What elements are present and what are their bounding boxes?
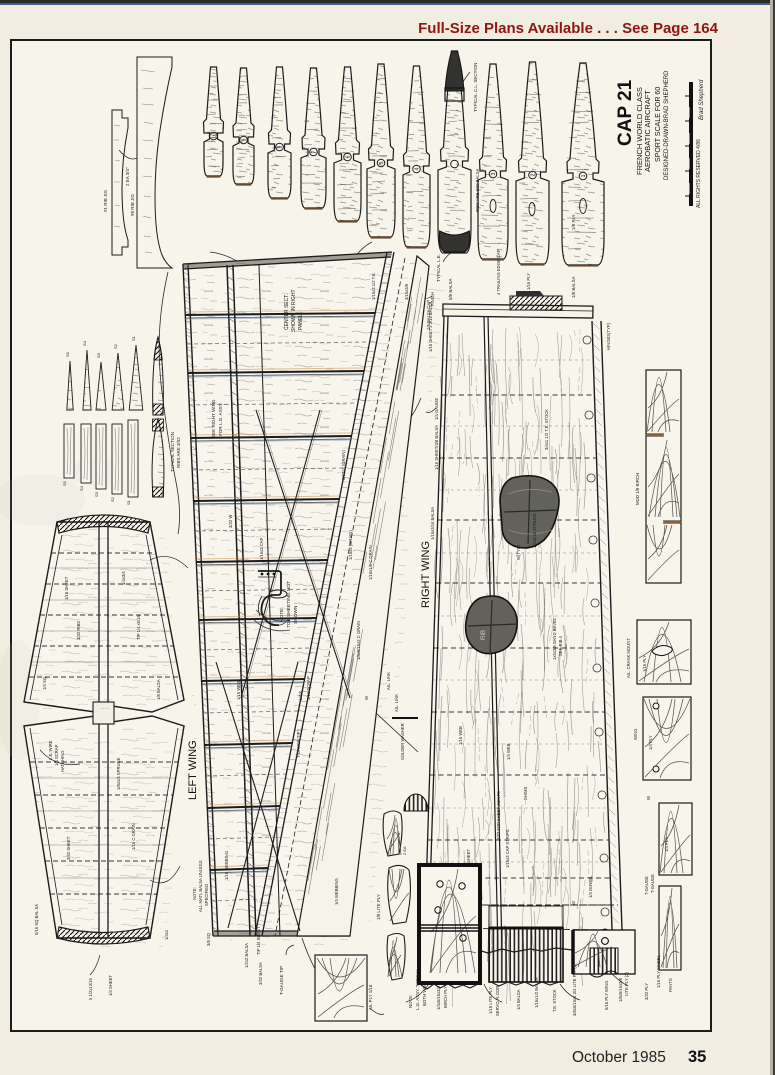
svg-text:7: 7 (312, 150, 318, 153)
svg-text:3/32 SHEET: 3/32 SHEET (66, 836, 71, 860)
svg-text:3/32 W: 3/32 W (228, 515, 233, 528)
svg-text:3/32 BALSA: 3/32 BALSA (258, 962, 263, 985)
svg-text:S4: S4 (82, 340, 87, 346)
svg-text:1/16 WEBBING: 1/16 WEBBING (224, 851, 229, 880)
svg-text:S2: S2 (113, 343, 118, 349)
svg-text:SPORT SCALE FOR 60: SPORT SCALE FOR 60 (655, 87, 662, 162)
svg-text:1/8 PLY: 1/8 PLY (571, 214, 576, 230)
svg-text:3/16 SCRAP: 3/16 SCRAP (306, 676, 311, 700)
svg-text:1: 1 (581, 174, 587, 177)
svg-text:#8 RIB JIG: #8 RIB JIG (130, 193, 135, 216)
svg-text:5/16 SQ BAL SA: 5/16 SQ BAL SA (34, 904, 39, 935)
svg-text:1/4x1: 1/4x1 (164, 929, 169, 940)
svg-text:1/4 PLY: 1/4 PLY (664, 837, 669, 852)
svg-text:S3: S3 (96, 352, 101, 358)
svg-text:SEE RIGHT WING: SEE RIGHT WING (211, 399, 216, 438)
svg-text:1/4 BALSA: 1/4 BALSA (516, 989, 521, 1010)
svg-text:1/8 LITE PLY: 1/8 LITE PLY (376, 894, 381, 920)
svg-text:3/16x3/8: 3/16x3/8 (404, 283, 409, 300)
svg-text:1/16x3 1/2 T.E.: 1/16x3 1/2 T.E. (371, 272, 376, 300)
svg-text:S5: S5 (65, 351, 70, 357)
svg-text:TIP 1/4 x5/16: TIP 1/4 x5/16 (136, 614, 141, 640)
svg-text:S2: S2 (110, 496, 115, 502)
svg-text:WING: WING (633, 729, 638, 740)
svg-text:1/8x5/16x2 C GRAIN: 1/8x5/16x2 C GRAIN (356, 621, 361, 660)
svg-text:SHIMS: SHIMS (523, 787, 528, 800)
svg-text:T-GAUGE TIP: T-GAUGE TIP (279, 966, 284, 995)
svg-text:1/8x1/4 SPRUCE: 1/8x1/4 SPRUCE (116, 757, 121, 790)
svg-text:3/32x3 (GRAIN): 3/32x3 (GRAIN) (341, 450, 346, 480)
svg-text:4: 4 (415, 167, 421, 170)
svg-text:AIL. LINK: AIL. LINK (394, 694, 399, 712)
svg-text:1/4 WEBBING: 1/4 WEBBING (334, 878, 339, 905)
svg-text:W: W (571, 901, 576, 905)
svg-text:Full-Size Plans Available . .: Full-Size Plans Available . . . See Page… (418, 20, 719, 37)
svg-text:1/16 WEB: 1/16 WEB (458, 726, 463, 745)
svg-text:8: 8 (278, 145, 284, 148)
svg-text:5 1/2x13/16: 5 1/2x13/16 (88, 977, 93, 1000)
svg-text:October 1985: October 1985 (572, 1049, 666, 1066)
svg-text:T-GAUGE: T-GAUGE (644, 876, 649, 895)
svg-text:1/16 PLY: 1/16 PLY (526, 273, 531, 290)
svg-text:TOP SHEETING NOT: TOP SHEETING NOT (286, 581, 292, 628)
svg-text:PANEL: PANEL (298, 314, 304, 330)
svg-text:1/16x1/2 C GRAIN: 1/16x1/2 C GRAIN (368, 545, 373, 580)
svg-text:RIGHT WING: RIGHT WING (420, 541, 432, 608)
svg-text:SHOWN: SHOWN (293, 605, 299, 624)
svg-text:1/16x1/2 BALSA: 1/16x1/2 BALSA (534, 977, 539, 1008)
svg-text:MDD 1/8 BIRCH: MDD 1/8 BIRCH (635, 473, 640, 505)
svg-text:PANTS: PANTS (668, 978, 673, 992)
svg-text:2 EA 3/4": 2 EA 3/4" (125, 167, 130, 186)
svg-text:1/4 WEB: 1/4 WEB (506, 743, 511, 760)
svg-text:RIBS ARE 3/32: RIBS ARE 3/32 (176, 437, 181, 468)
svg-text:W: W (646, 796, 651, 800)
svg-text:9: 9 (242, 138, 248, 141)
svg-text:35: 35 (688, 1048, 706, 1066)
svg-text:AIL. LINK: AIL. LINK (386, 672, 391, 690)
svg-text:3/8x5/16x4 3/4 LITE PLY (2): 3/8x5/16x4 3/4 LITE PLY (2) (572, 963, 577, 1016)
svg-text:SOLDER WASHER: SOLDER WASHER (400, 723, 405, 760)
svg-text:S1: S1 (131, 335, 136, 341)
svg-text:RIB: RIB (481, 630, 487, 640)
svg-text:1/16x3 (GRAIN): 1/16x3 (GRAIN) (348, 530, 353, 560)
svg-text:AIL PLY 1/16: AIL PLY 1/16 (368, 984, 373, 1010)
svg-text:5/16 PLY WING: 5/16 PLY WING (604, 981, 609, 1010)
svg-text:1/4 DOWEL: 1/4 DOWEL (588, 875, 593, 898)
svg-text:2 EA: 2 EA (402, 846, 407, 855)
svg-text:BIRCH PLY: BIRCH PLY (443, 986, 448, 1008)
svg-text:5: 5 (379, 161, 385, 164)
svg-text:1/4 PLY: 1/4 PLY (648, 735, 653, 750)
svg-text:5/8 BALSA: 5/8 BALSA (448, 278, 453, 300)
svg-text:1/4 SHEET: 1/4 SHEET (108, 975, 113, 996)
svg-text:1/16x3 CAP: 1/16x3 CAP (259, 537, 264, 560)
svg-text:AEROBATIC AIRCRAFT: AEROBATIC AIRCRAFT (643, 90, 652, 172)
svg-text:1/16 PLY WHEEL: 1/16 PLY WHEEL (656, 954, 661, 988)
svg-text:W: W (364, 696, 369, 700)
svg-text:1/16x3 CAP STRIPS: 1/16x3 CAP STRIPS (505, 829, 510, 868)
svg-text:CENTER SECT.: CENTER SECT. (284, 294, 290, 330)
svg-text:4 TRAILING EDGE CAP: 4 TRAILING EDGE CAP (496, 249, 501, 295)
svg-text:1/4x5/16x3/4: 1/4x5/16x3/4 (436, 985, 441, 1010)
svg-text:ALL RIGHTS RESERVED 4/86: ALL RIGHTS RESERVED 4/86 (696, 139, 702, 208)
svg-text:#1 RIB JIG: #1 RIB JIG (103, 189, 108, 212)
svg-text:1/16 WEB: 1/16 WEB (236, 681, 241, 700)
svg-text:FOR L.G. ASSY.: FOR L.G. ASSY. (218, 402, 223, 436)
svg-text:W(TYP): W(TYP) (516, 545, 521, 560)
svg-text:1/8 BALSA: 1/8 BALSA (156, 679, 161, 700)
svg-text:3/8 SQ: 3/8 SQ (206, 932, 211, 946)
svg-text:1x4x3/8 SAND BEVEL: 1x4x3/8 SAND BEVEL (552, 617, 557, 660)
svg-text:L.E. WIRE: L.E. WIRE (48, 740, 53, 760)
svg-text:1/8 BALSA CAP: 1/8 BALSA CAP (426, 300, 431, 330)
svg-text:10: 10 (212, 133, 218, 139)
svg-text:6: 6 (346, 155, 352, 158)
svg-text:ALL MATL BALSA UNLESS: ALL MATL BALSA UNLESS (198, 860, 203, 912)
svg-text:T.E. STOCK: T.E. STOCK (552, 989, 557, 1012)
svg-text:S4: S4 (79, 485, 84, 491)
svg-text:S5: S5 (62, 480, 67, 486)
svg-text:NOTE:: NOTE: (192, 887, 197, 900)
svg-text:TIP 1/4 SHEET: TIP 1/4 SHEET (256, 926, 261, 955)
svg-text:1/8 BALSA: 1/8 BALSA (571, 276, 576, 298)
svg-text:2: 2 (531, 173, 537, 176)
svg-text:1/16 PLY: 1/16 PLY (642, 655, 647, 672)
svg-text:3/4x1 1/2 T.E. STOCK: 3/4x1 1/2 T.E. STOCK (544, 409, 549, 450)
svg-text:1/16 SHEET: 1/16 SHEET (64, 576, 69, 600)
svg-text:CAP 21: CAP 21 (615, 79, 636, 146)
svg-text:SEE RIB 4: SEE RIB 4 (558, 635, 563, 656)
svg-text:DESIGNED-DRAWN-BRAD SHEPHERD: DESIGNED-DRAWN-BRAD SHEPHERD (664, 70, 670, 180)
svg-text:SHOWN IN RIGHT: SHOWN IN RIGHT (291, 290, 297, 333)
svg-text:1/16 LITE PLY: 1/16 LITE PLY (488, 987, 493, 1014)
svg-text:SPECIFIED: SPECIFIED (204, 884, 209, 906)
svg-text:1/2x2 BALSA: 1/2x2 BALSA (244, 943, 249, 968)
svg-text:3/32 PLY: 3/32 PLY (644, 983, 649, 1000)
svg-text:1/16x3/16 BALSA: 1/16x3/16 BALSA (430, 507, 435, 540)
svg-text:1/16 SHEET/3/8 BALSA: 1/16 SHEET/3/8 BALSA (434, 425, 439, 470)
svg-text:S1: S1 (126, 499, 131, 505)
svg-text:Brad Shepherd: Brad Shepherd (699, 79, 705, 120)
svg-text:T-GAUGE: T-GAUGE (650, 874, 655, 893)
svg-text:3/32 RIBS: 3/32 RIBS (76, 621, 81, 640)
svg-text:NOTE:: NOTE: (279, 607, 285, 622)
svg-text:3: 3 (491, 172, 497, 175)
svg-text:TYPICAL C.L. SECTION: TYPICAL C.L. SECTION (473, 63, 478, 112)
svg-text:HATCHING: HATCHING (60, 750, 65, 772)
svg-text:3/32 TOP SHEET JOINTS: 3/32 TOP SHEET JOINTS (496, 791, 501, 840)
svg-text:HINGES(TYP): HINGES(TYP) (606, 322, 611, 350)
svg-text:AIL. CRANK MOUNT: AIL. CRANK MOUNT (626, 638, 631, 678)
svg-text:LINK: LINK (298, 690, 303, 700)
svg-text:S3: S3 (94, 491, 99, 497)
svg-text:1/4x5/16 SPRUCE: 1/4x5/16 SPRUCE (532, 513, 537, 548)
svg-text:1/4 SQ: 1/4 SQ (42, 676, 47, 690)
svg-text:1/4x3/4: 1/4x3/4 (121, 571, 126, 585)
svg-text:1/16 C GRAIN: 1/16 C GRAIN (131, 823, 136, 850)
svg-text:RIBS ARE 3/32 BALSA: RIBS ARE 3/32 BALSA (475, 168, 480, 212)
svg-text:T-GAUGE TIP: T-GAUGE TIP (296, 731, 301, 758)
svg-text:TYPICAL SECTION: TYPICAL SECTION (170, 432, 175, 472)
